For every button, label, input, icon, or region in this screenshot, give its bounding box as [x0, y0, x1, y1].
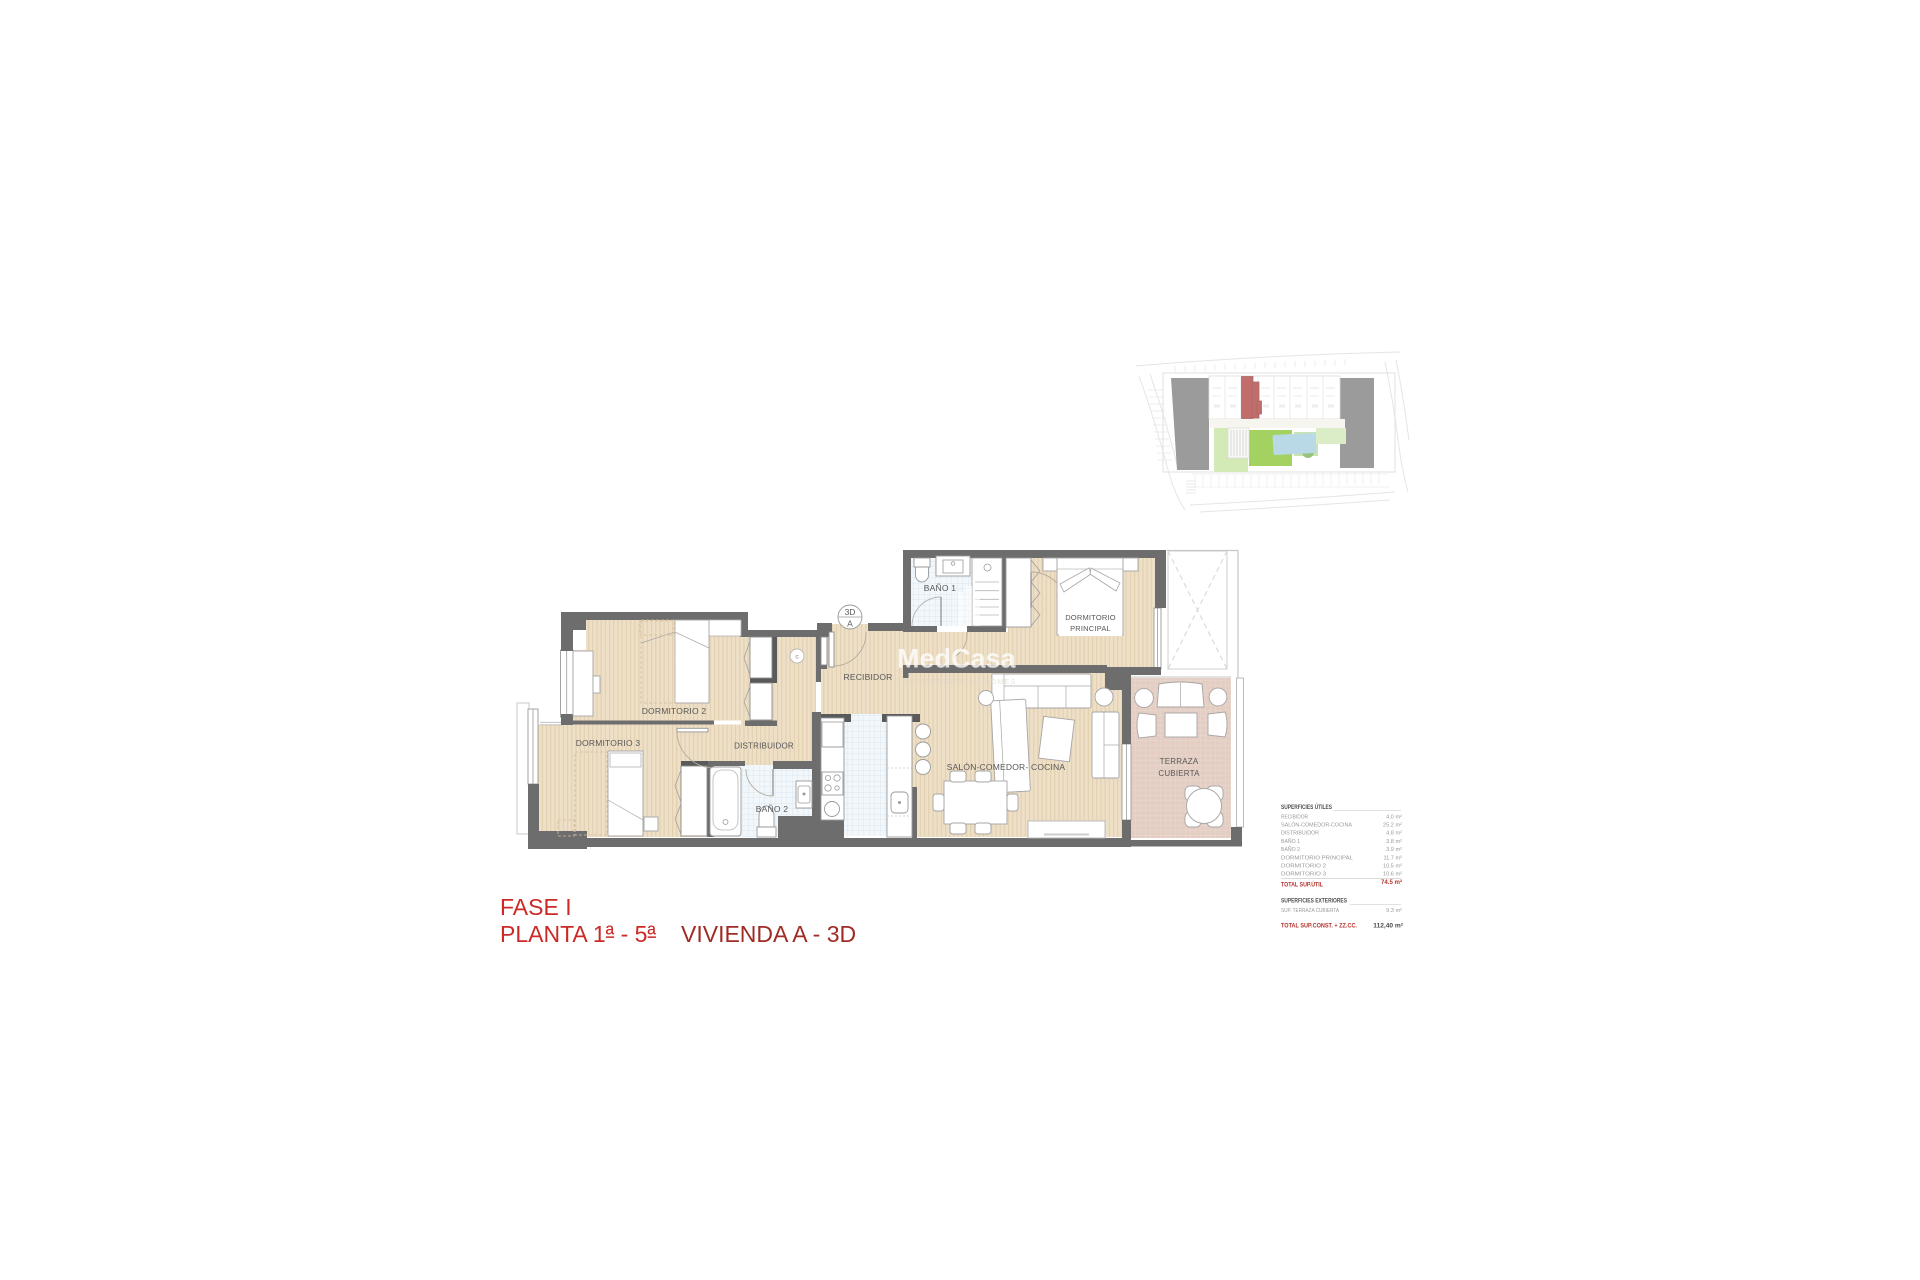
svg-text:74.5 m²: 74.5 m²: [1381, 879, 1402, 886]
svg-text:3.8 m²: 3.8 m²: [1386, 839, 1402, 845]
svg-text:A: A: [847, 619, 853, 629]
svg-text:9.3 m²: 9.3 m²: [1386, 908, 1402, 914]
svg-text:DORMITORIO 3: DORMITORIO 3: [576, 738, 641, 748]
svg-text:DORMITORIO 3: DORMITORIO 3: [1281, 872, 1326, 878]
svg-text:PRINCIPAL: PRINCIPAL: [1070, 624, 1111, 633]
svg-text:DORMITORIO 2: DORMITORIO 2: [642, 706, 707, 716]
svg-text:MEDITERRANEAN HOMES: MEDITERRANEAN HOMES: [903, 677, 1016, 686]
svg-text:DORMITORIO 2: DORMITORIO 2: [1281, 864, 1326, 870]
svg-text:PLANTA 1ª - 5ª: PLANTA 1ª - 5ª: [500, 921, 656, 947]
svg-text:FASE I: FASE I: [500, 894, 572, 920]
svg-text:SALÓN-COMEDOR- COCINA: SALÓN-COMEDOR- COCINA: [947, 762, 1066, 772]
svg-text:BAÑO 2: BAÑO 2: [1281, 846, 1300, 853]
svg-text:10.5 m²: 10.5 m²: [1383, 864, 1402, 870]
svg-text:DISTRIBUIDOR: DISTRIBUIDOR: [1281, 831, 1319, 837]
svg-text:4.0 m²: 4.0 m²: [1386, 814, 1402, 820]
svg-text:25.2 m²: 25.2 m²: [1383, 823, 1402, 829]
svg-text:MedCasa: MedCasa: [897, 644, 1017, 674]
svg-text:BAÑO 1: BAÑO 1: [1281, 838, 1300, 845]
svg-text:DORMITORIO: DORMITORIO: [1065, 613, 1116, 622]
svg-text:3D: 3D: [845, 607, 856, 617]
svg-text:CUBIERTA: CUBIERTA: [1158, 769, 1200, 778]
svg-text:BAÑO 2: BAÑO 2: [756, 804, 788, 814]
svg-text:4.8 m²: 4.8 m²: [1386, 831, 1402, 837]
svg-text:11.7 m²: 11.7 m²: [1383, 855, 1402, 861]
svg-text:SUP. TERRAZA CUBIERTA: SUP. TERRAZA CUBIERTA: [1281, 908, 1339, 914]
svg-text:RECIBIDOR: RECIBIDOR: [1281, 814, 1308, 820]
svg-text:112,40 m²: 112,40 m²: [1373, 923, 1403, 930]
svg-text:SUPERFICIES EXTERIORES: SUPERFICIES EXTERIORES: [1281, 898, 1348, 905]
svg-text:TOTAL SUP.ÚTIL: TOTAL SUP.ÚTIL: [1281, 882, 1323, 889]
svg-text:10.6 m²: 10.6 m²: [1383, 872, 1402, 878]
svg-text:TERRAZA: TERRAZA: [1160, 757, 1199, 766]
svg-text:SUPERFICIES ÚTILES: SUPERFICIES ÚTILES: [1281, 802, 1333, 811]
svg-text:RECIBIDOR: RECIBIDOR: [843, 672, 892, 682]
svg-text:TOTAL SUP.CONST. + ZZ.CC.: TOTAL SUP.CONST. + ZZ.CC.: [1281, 923, 1357, 930]
svg-text:BAÑO 1: BAÑO 1: [924, 583, 956, 593]
svg-text:SALÓN-COMEDOR-COCINA: SALÓN-COMEDOR-COCINA: [1281, 822, 1352, 829]
svg-text:3.9 m²: 3.9 m²: [1386, 847, 1402, 853]
svg-text:DORMITORIO PRINCIPAL: DORMITORIO PRINCIPAL: [1281, 855, 1353, 861]
svg-text:VIVIENDA A - 3D: VIVIENDA A - 3D: [681, 921, 856, 947]
svg-text:DISTRIBUIDOR: DISTRIBUIDOR: [734, 742, 794, 751]
